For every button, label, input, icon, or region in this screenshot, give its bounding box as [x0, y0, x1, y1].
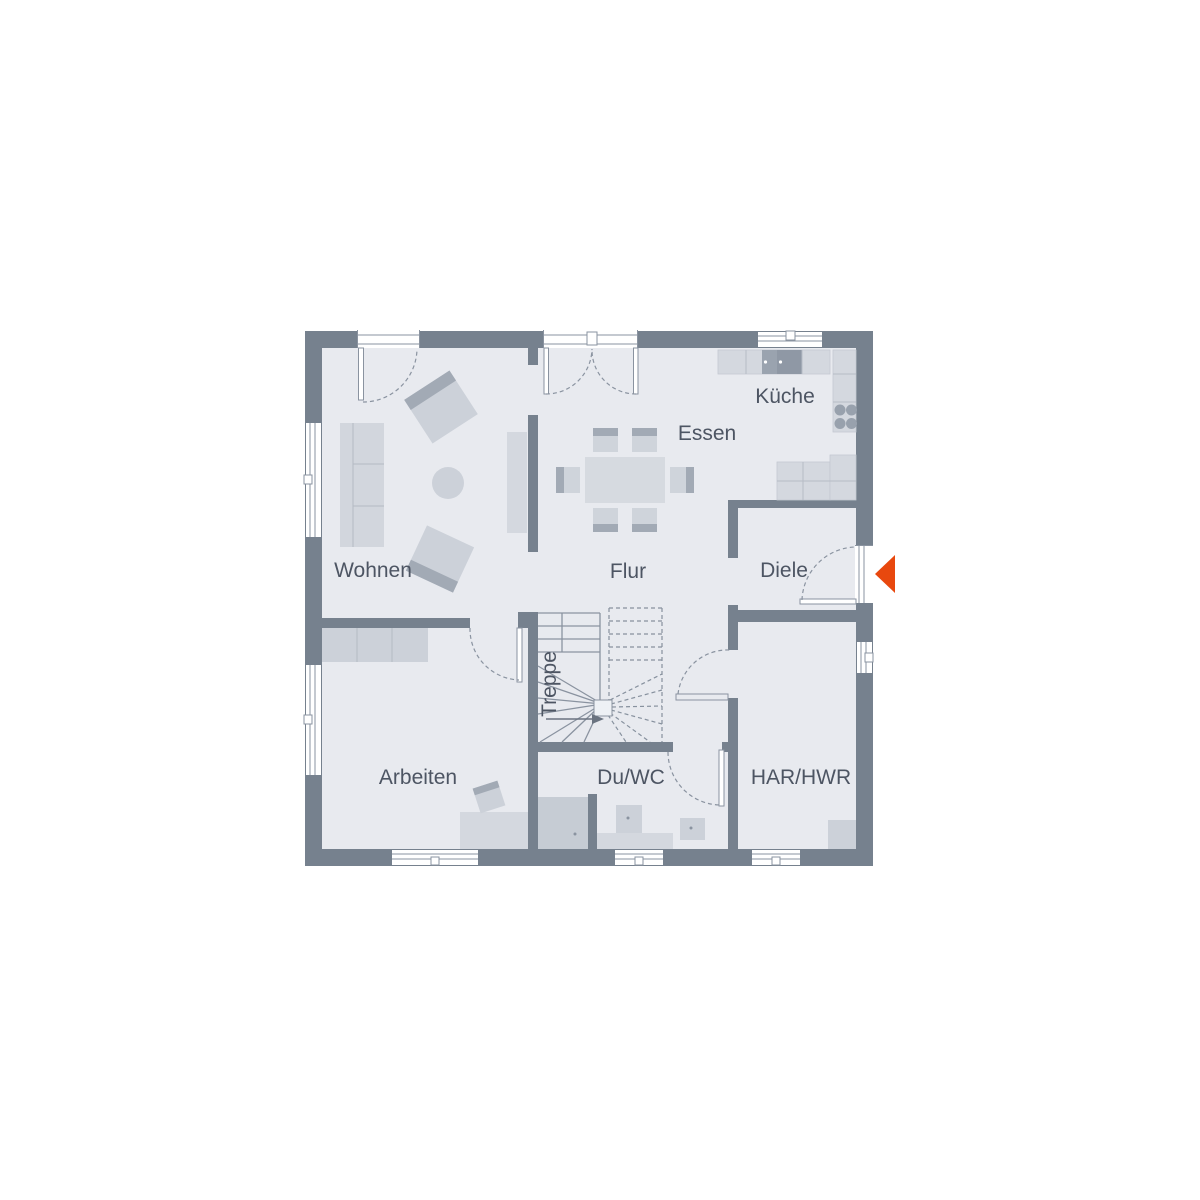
room-label-essen: Essen [678, 422, 736, 445]
window-icon [857, 642, 873, 673]
wall-shower-partition [588, 794, 597, 849]
dining-table [585, 457, 665, 503]
window-icon [758, 331, 822, 347]
wall-tv [528, 415, 538, 552]
kitchen-island [830, 455, 856, 500]
wall-stair-left [528, 612, 538, 849]
sofa [340, 423, 384, 547]
laundry-appliance [828, 820, 856, 849]
window-icon [304, 665, 321, 775]
window-icon [304, 423, 321, 537]
window-icon [752, 850, 800, 865]
shelf [322, 628, 428, 662]
desk [460, 812, 528, 849]
window-icon [615, 850, 663, 865]
room-label-treppe: Treppe [538, 651, 561, 717]
toilet [680, 818, 705, 840]
room-label-harhwr: HAR/HWR [751, 766, 851, 789]
shower [538, 797, 588, 849]
wall-diele-bottom-stub [728, 605, 738, 650]
room-label-diele: Diele [760, 559, 808, 582]
wall-stub-top [528, 348, 538, 365]
stair-landing [594, 700, 612, 716]
bath-counter [597, 833, 673, 849]
window-icon [392, 850, 478, 865]
wall-stair-bottom [528, 742, 673, 752]
room-label-wohnen: Wohnen [334, 559, 412, 582]
wall-harhwr-left [728, 698, 738, 849]
floorplan-canvas: Wohnen Essen Küche Flur Diele Arbeiten D… [0, 0, 1200, 1200]
coffee-table [432, 467, 464, 499]
wall-diele-top-stub [728, 500, 738, 558]
floorplan-svg: Wohnen Essen Küche Flur Diele Arbeiten D… [0, 0, 1200, 1200]
wall-diele-bottom [738, 610, 856, 622]
room-label-duwc: Du/WC [597, 766, 665, 789]
entrance-arrow-icon [875, 555, 895, 593]
room-label-flur: Flur [610, 560, 646, 583]
room-label-arbeiten: Arbeiten [379, 766, 457, 789]
wall-diele-top [728, 500, 856, 508]
wall-wohnen-arbeiten [322, 618, 470, 628]
tv-lowboard [507, 432, 527, 533]
wall-left [305, 331, 322, 866]
room-label-kueche: Küche [755, 385, 815, 408]
